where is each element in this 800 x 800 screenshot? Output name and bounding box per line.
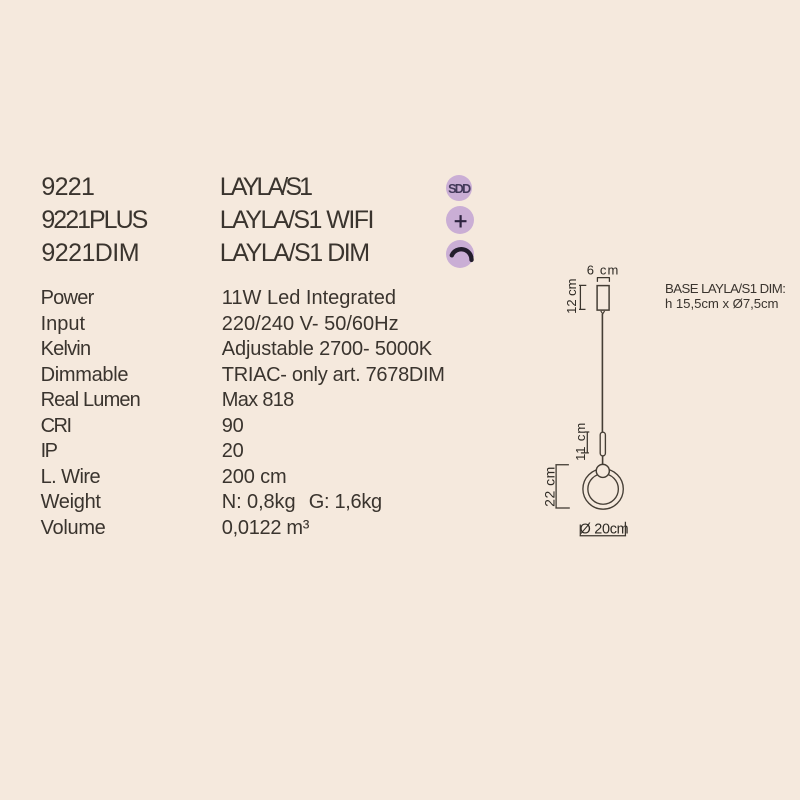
svg-text:22 cm: 22 cm xyxy=(542,466,558,507)
svg-text:6 cm: 6 cm xyxy=(587,263,620,278)
svg-text:12 cm: 12 cm xyxy=(564,278,579,313)
svg-text:Ø 20cm: Ø 20cm xyxy=(580,521,629,537)
svg-text:11 cm: 11 cm xyxy=(573,422,588,461)
